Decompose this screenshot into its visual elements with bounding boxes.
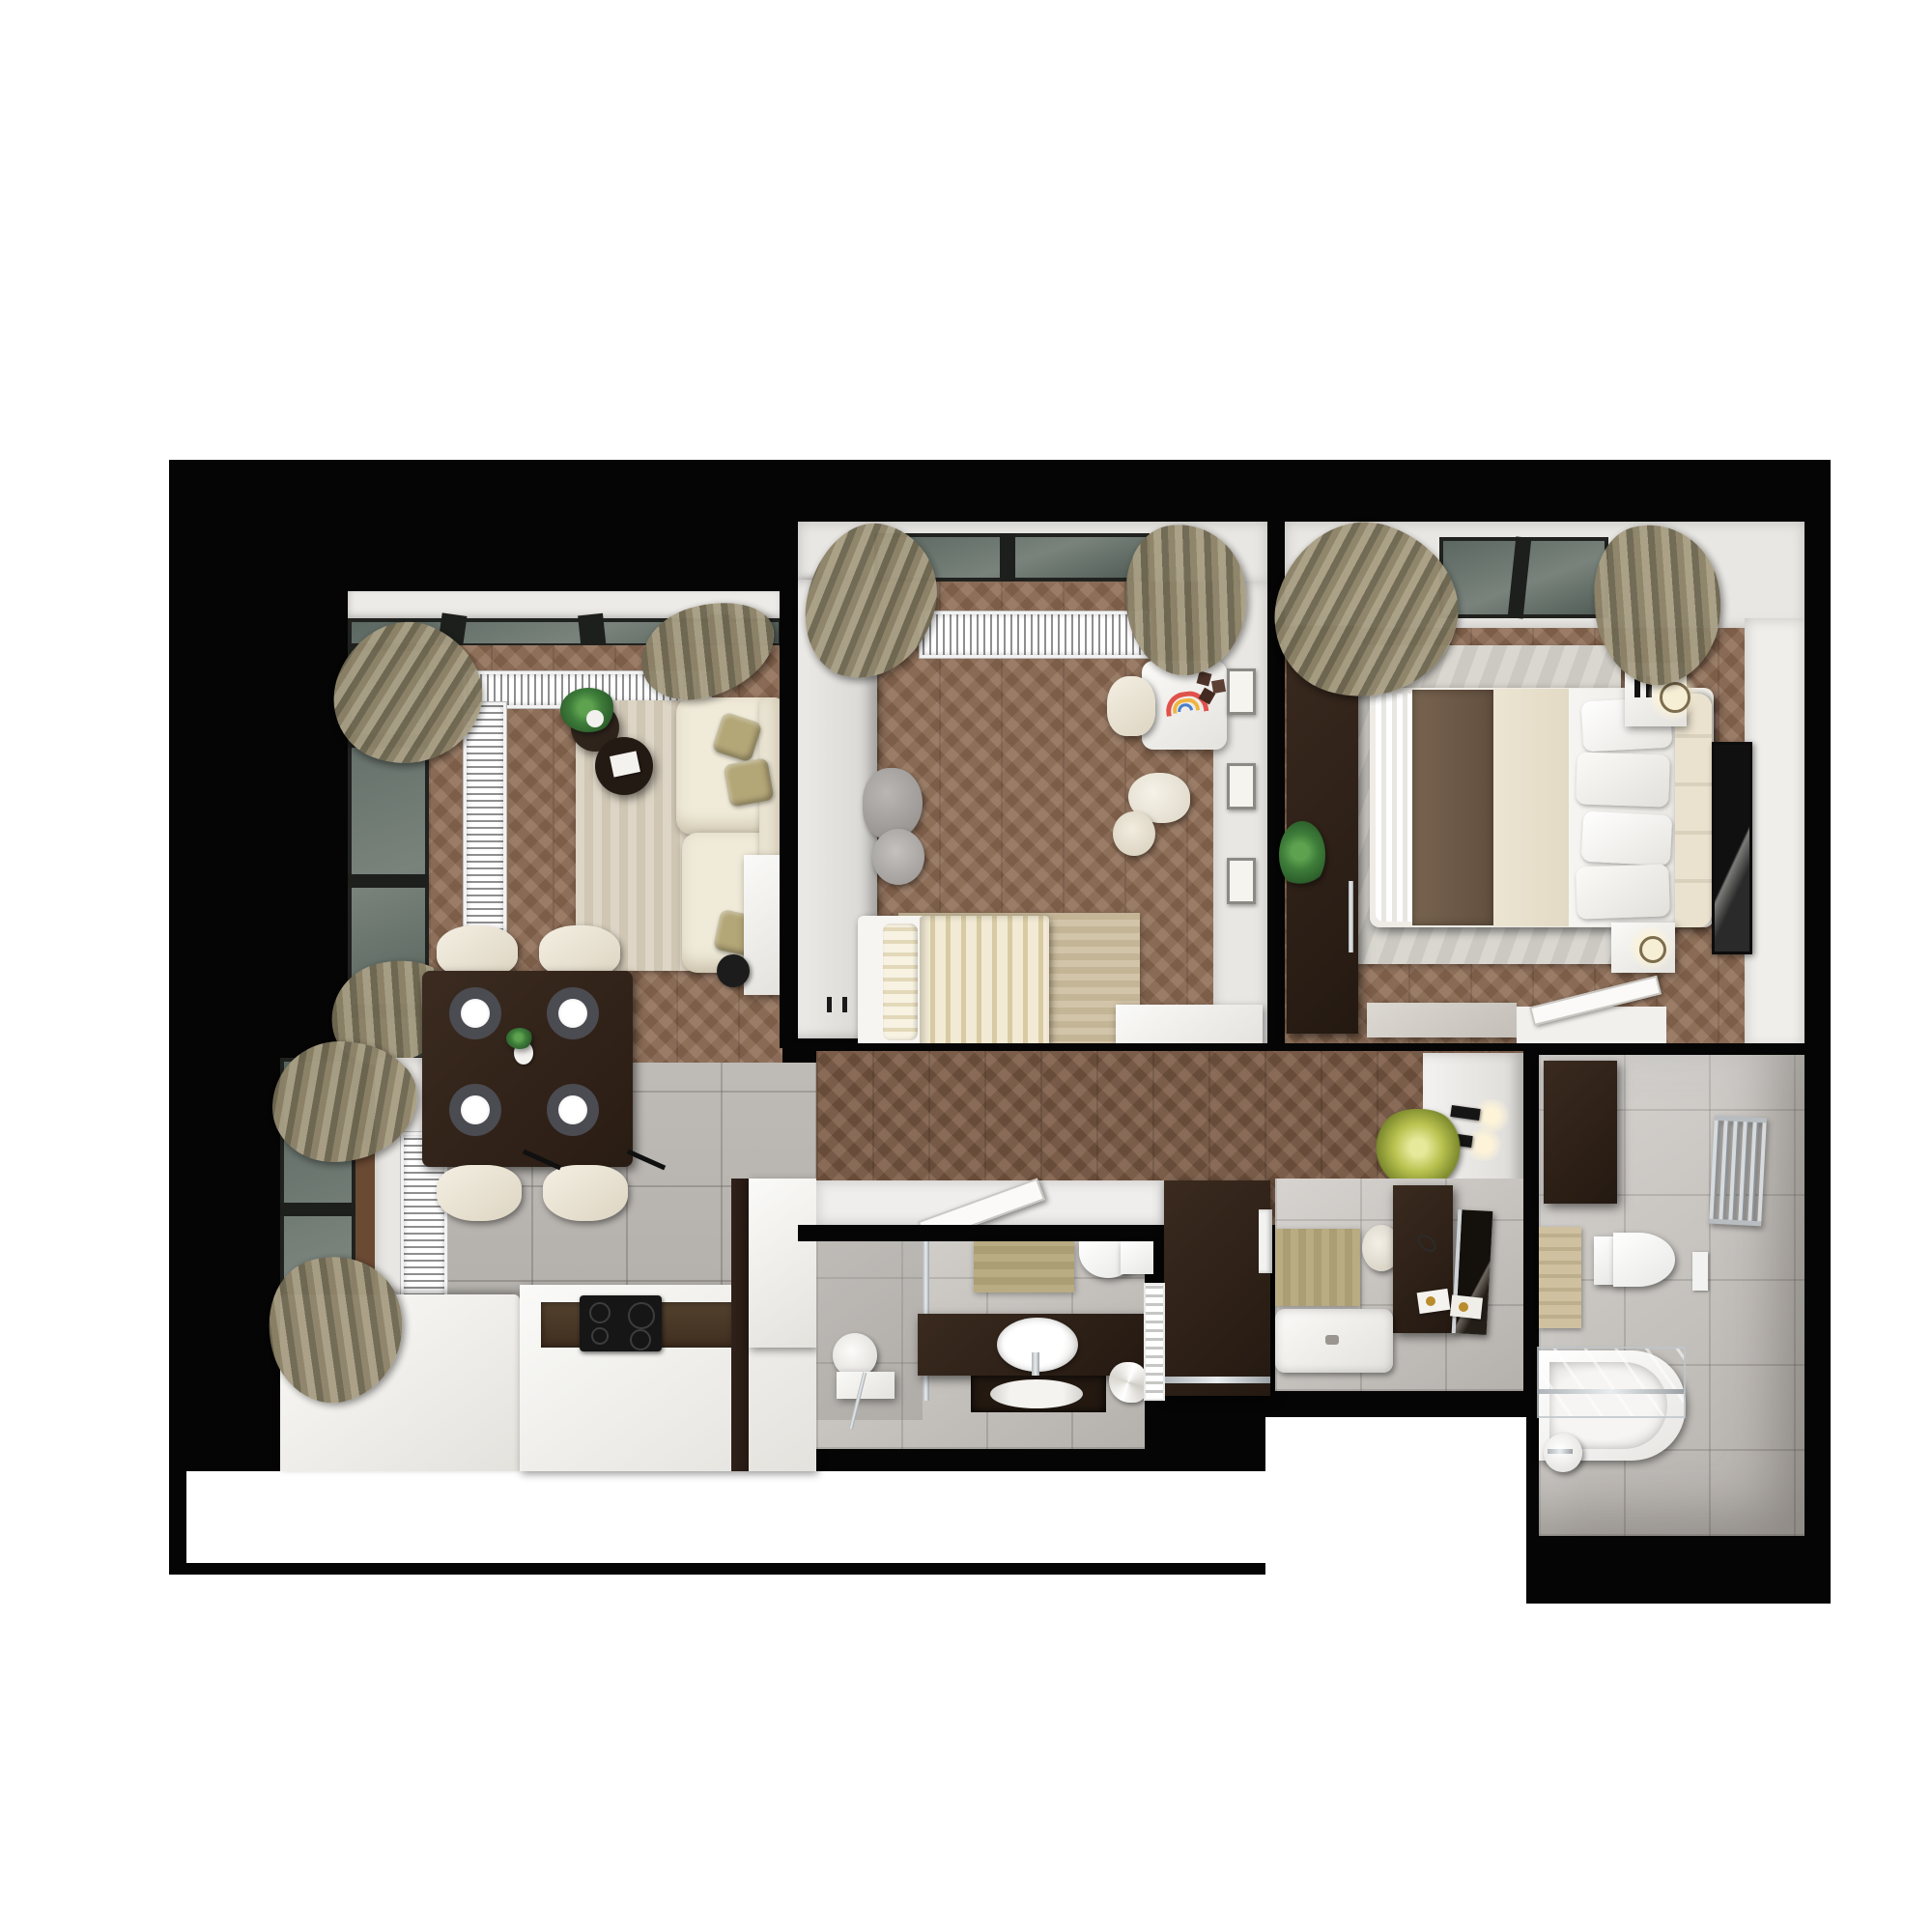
bath3-dark-panel: [1544, 1061, 1617, 1204]
wardrobe-handle: [842, 997, 847, 1012]
master-pillow: [1576, 864, 1670, 919]
kids-bedroom: [0, 0, 1932, 22]
bath-glass-screen: [1539, 1349, 1684, 1416]
master-blanket-brown: [1412, 690, 1493, 925]
dining-chair-top: [437, 925, 518, 978]
cooktop-burner: [591, 1327, 609, 1345]
plate: [558, 1095, 587, 1124]
master-artwork: [1712, 742, 1752, 954]
kitchen-window-mullion: [280, 1203, 355, 1216]
dining-chair-top: [539, 925, 620, 978]
master-pillow: [1576, 752, 1670, 807]
bath3-toilet-tank: [1594, 1236, 1615, 1285]
kids-low-dresser: [1116, 1005, 1263, 1048]
black-vase: [717, 954, 750, 987]
bottom-left-page-cutout: [169, 1575, 1265, 1604]
makeup-gold-jar: [1426, 1296, 1435, 1306]
master-dresser: [1367, 1003, 1517, 1037]
master-mattress-edge: [1376, 694, 1412, 922]
wardrobe-handle: [827, 997, 832, 1012]
cooktop-burner: [589, 1302, 611, 1323]
sofa-pillow: [724, 757, 775, 807]
bath1-towel-radiator: [1146, 1285, 1163, 1399]
toy-block: [1211, 679, 1226, 694]
wall-living-kids: [780, 591, 798, 1048]
kids-bed-duvet: [920, 916, 1049, 1048]
plant-pot: [586, 710, 604, 727]
washing-machine-front: [1259, 1209, 1272, 1273]
plate: [461, 1095, 490, 1124]
kids-radiator: [920, 611, 1151, 658]
hall-accent-plant: [1372, 1109, 1464, 1186]
bath1-sink-reflection: [990, 1379, 1083, 1408]
bath2-mat: [1275, 1229, 1360, 1306]
kids-chair: [1107, 676, 1155, 736]
lamp-top-ring: [1660, 682, 1690, 713]
wall-frame: [1227, 668, 1256, 715]
plate: [461, 999, 490, 1028]
bath1-towel: [1109, 1362, 1148, 1403]
bath1-faucet: [1032, 1352, 1039, 1378]
kids-bed-pillow: [883, 923, 918, 1040]
cooktop-burner: [630, 1329, 651, 1350]
towel-radiator: [1709, 1116, 1767, 1227]
paper-holder-slot: [1548, 1449, 1573, 1454]
dining-chair-bottom: [437, 1165, 522, 1221]
lamp-bottom-ring: [1639, 936, 1666, 963]
master-plant: [1279, 821, 1325, 889]
dining-chair-bottom: [543, 1165, 628, 1221]
bath1-mat: [974, 1241, 1074, 1293]
living-window-mullion: [348, 874, 429, 888]
plush-elephant-head: [872, 829, 924, 885]
bottom-left-white-ledge: [186, 1471, 1265, 1563]
kitchen-tall-unit-side: [731, 1179, 749, 1471]
living-plant: [560, 688, 616, 732]
flush-plate: [1692, 1252, 1708, 1291]
sofa-side-table: [744, 855, 782, 995]
bath-screen-bar: [1539, 1389, 1684, 1394]
shower-drain: [1325, 1335, 1339, 1345]
wall-frame: [1227, 763, 1256, 810]
master-wardrobe-handle: [1349, 881, 1353, 952]
kitchen-tall-unit: [749, 1179, 816, 1348]
hall-wardrobe-plinth: [1164, 1377, 1270, 1383]
kids-window-mullion: [1000, 533, 1015, 582]
master-headboard: [1675, 694, 1712, 927]
bottom-center-white-cutout: [1265, 1417, 1526, 1604]
cooktop-burner: [628, 1302, 655, 1329]
hall-wardrobe-column: [1164, 1180, 1270, 1396]
floor-plan-render: [0, 0, 1932, 1932]
plush-sheep-head: [1113, 811, 1155, 856]
master-coverlet-cream: [1493, 689, 1569, 926]
plate: [558, 999, 587, 1028]
bath1-toilet-cistern: [1121, 1241, 1153, 1274]
wall-frame: [1227, 858, 1256, 904]
table-vase-greens: [506, 1028, 533, 1049]
master-pillow: [1581, 811, 1673, 867]
bath3-towels: [1539, 1227, 1581, 1328]
makeup-gold-jar: [1459, 1302, 1468, 1312]
master-right-wall: [1745, 618, 1804, 1048]
